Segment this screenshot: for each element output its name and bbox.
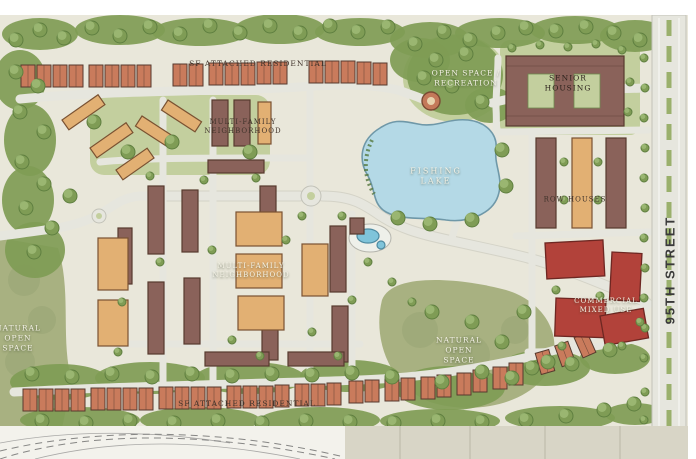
- row-houses-buildings: [536, 138, 626, 228]
- top-margin: [0, 0, 696, 15]
- street-95th-corridor: [652, 15, 686, 459]
- right-margin: [688, 0, 696, 459]
- site-plan-illustration: [0, 0, 696, 459]
- master-plan-canvas: SF Attached Residential Multi-Family Nei…: [0, 0, 696, 459]
- recreation-plaza: [422, 92, 440, 110]
- fishing-lake: [362, 120, 500, 221]
- senior-housing-building: [506, 56, 624, 126]
- aerial-photo-strip: [0, 426, 696, 459]
